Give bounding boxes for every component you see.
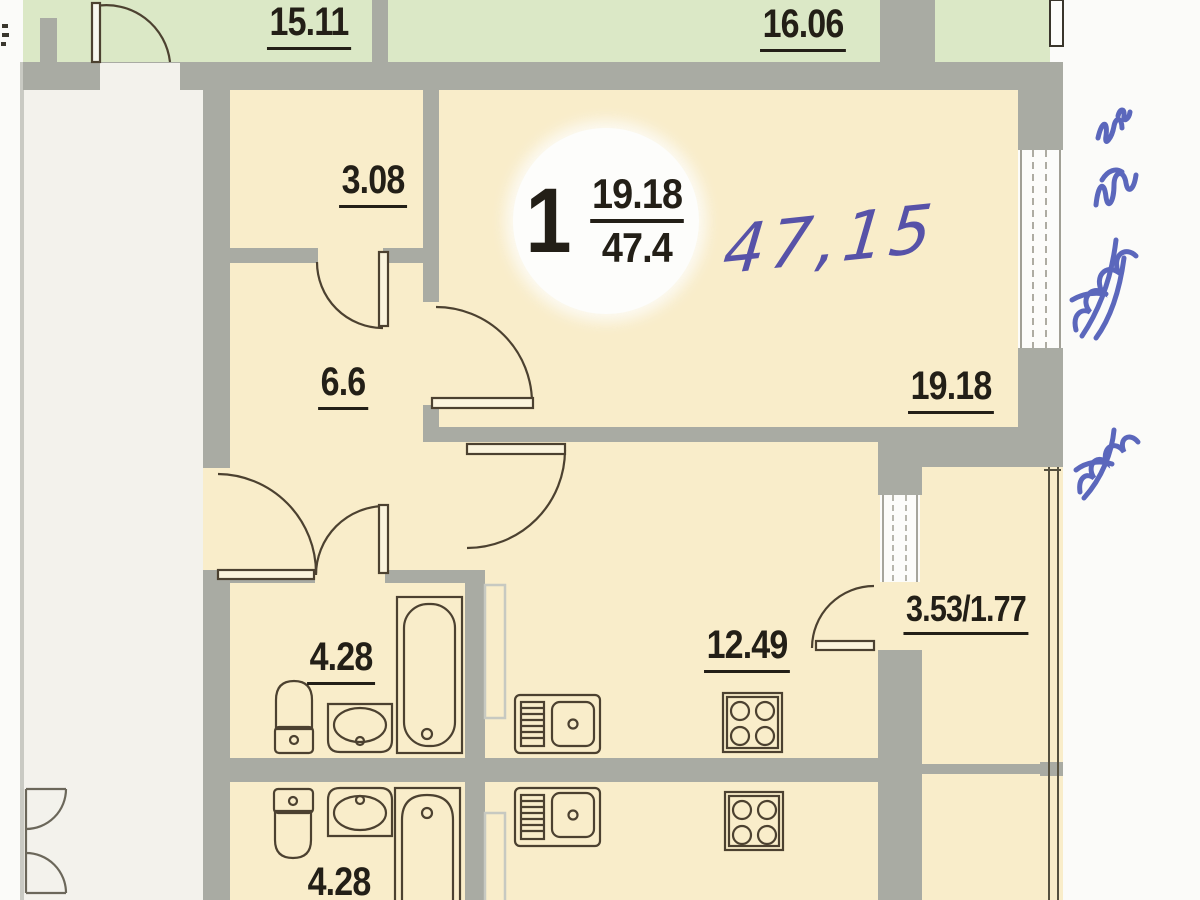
wall-closet-right — [423, 90, 439, 302]
wall-green-stub — [40, 18, 57, 62]
wall-balcony-divider-block — [1040, 762, 1063, 776]
apartment-badge-content: 1 19.18 47.4 — [523, 173, 688, 269]
door-opening-neighbor — [100, 63, 180, 90]
edge-mark — [1, 24, 9, 46]
room-label-balcony: 3.53/1.77 — [903, 591, 1028, 635]
wall-right-top — [1018, 62, 1063, 150]
room-label-hallway: 6.6 — [318, 362, 368, 410]
badge-total-area: 47.4 — [602, 223, 672, 269]
wall-green-divider — [372, 0, 388, 62]
room-label-kitchen: 12.49 — [704, 625, 790, 673]
wall-closet-bottom-left — [203, 248, 318, 263]
wall-green-block — [880, 0, 935, 62]
window-icon — [880, 495, 920, 582]
wall-kitchen-balcony-lower — [878, 782, 922, 900]
scanned-floor-plan-page: 15.11 16.06 3.08 6.6 19.18 4.28 12.49 3.… — [0, 0, 1200, 900]
room-label-16-06: 16.06 — [760, 4, 846, 52]
room-label-bathroom: 4.28 — [307, 637, 375, 685]
page-edge-line — [20, 62, 24, 900]
wall-unit-bottom — [203, 758, 922, 782]
badge-room-count: 1 — [526, 180, 572, 263]
wall-balcony-stub — [878, 427, 922, 495]
wall-living-bottom — [423, 427, 878, 442]
window-icon — [1018, 150, 1063, 348]
window-icon — [1050, 0, 1063, 46]
room-label-living: 19.18 — [908, 366, 994, 414]
wall-closet-bottom-right — [383, 248, 439, 263]
room-label-closet: 3.08 — [339, 160, 407, 208]
ink-scribble-icon — [1098, 119, 1122, 141]
badge-living-area: 19.18 — [590, 173, 684, 223]
wall-bathroom-right — [465, 570, 485, 900]
ink-scribbles — [1072, 110, 1138, 498]
apartment-badge: 1 19.18 47.4 — [513, 128, 699, 314]
entrance-opening — [203, 468, 230, 570]
room-label-15-11: 15.11 — [267, 2, 351, 50]
badge-area-fraction: 19.18 47.4 — [585, 173, 689, 269]
wall-kitchen-balcony — [878, 650, 922, 758]
room-label-mirror-bathroom: 4.28 — [305, 862, 373, 900]
stairwell-corridor-area — [23, 90, 203, 900]
wall-balcony-divider — [922, 764, 1040, 774]
